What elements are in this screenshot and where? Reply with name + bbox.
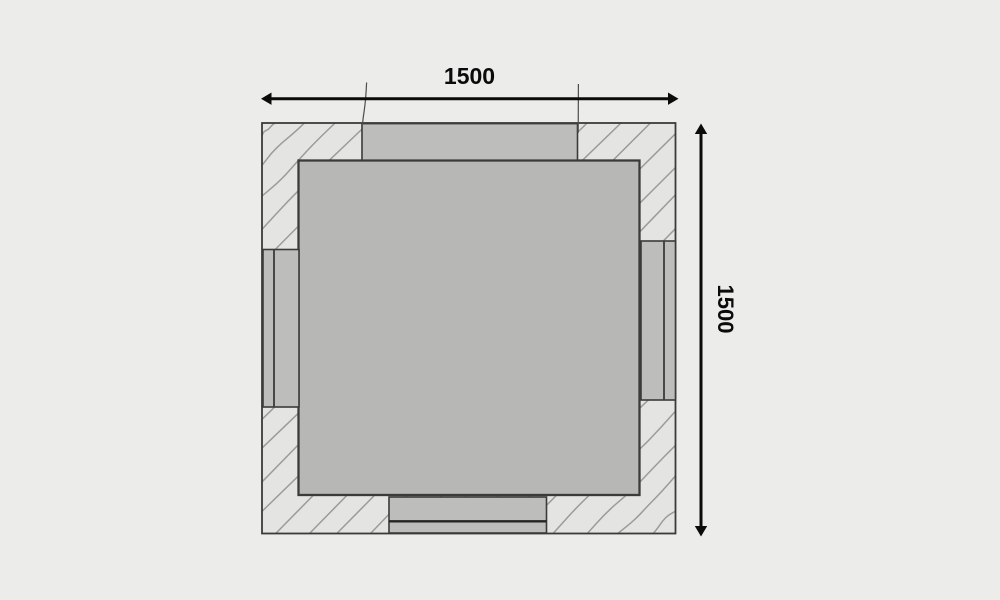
svg-text:1500: 1500 — [713, 285, 738, 334]
svg-text:1500: 1500 — [444, 63, 495, 89]
